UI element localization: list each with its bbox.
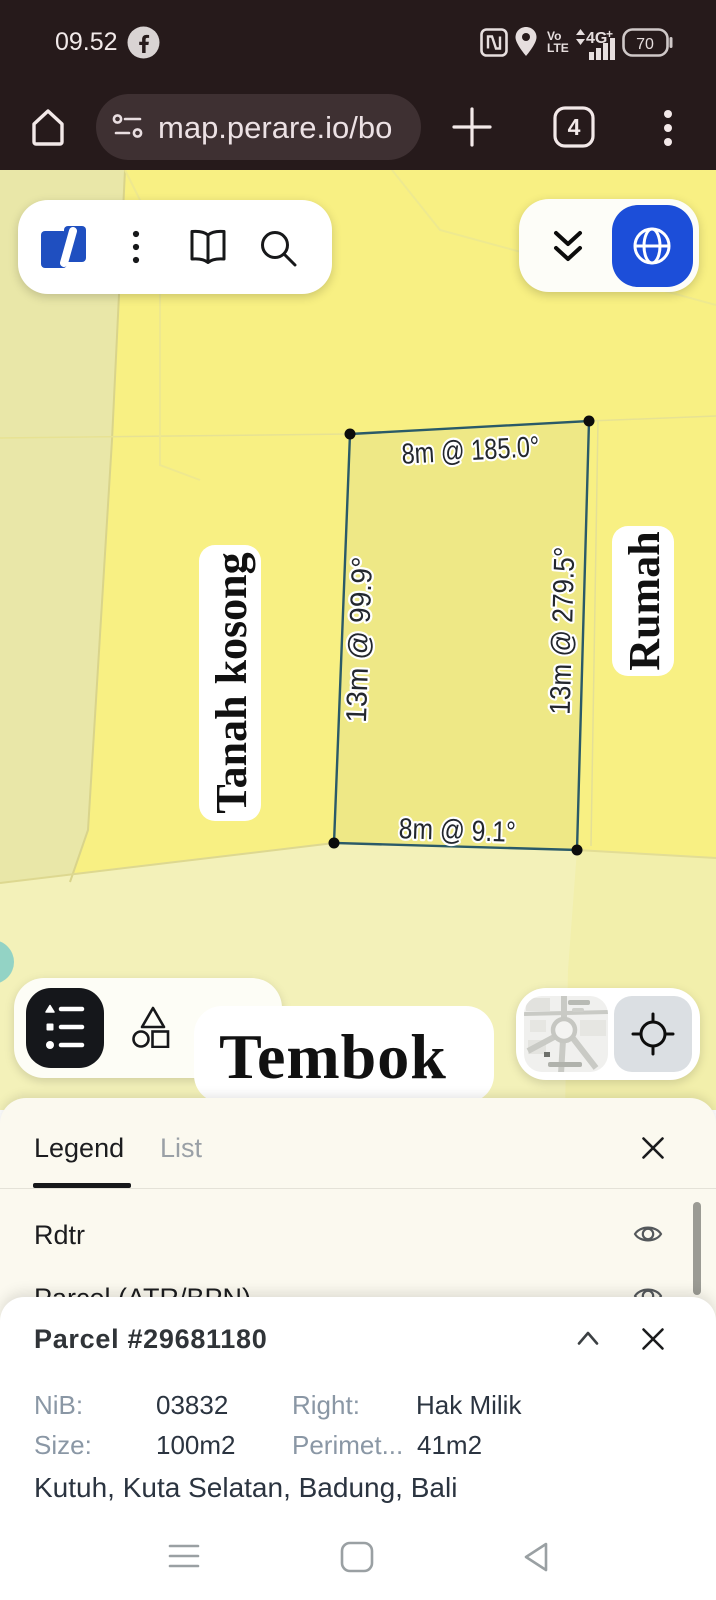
svg-text:70: 70: [636, 36, 654, 53]
svg-text:Tanah kosong: Tanah kosong: [207, 552, 256, 813]
svg-text:13m @ 279.5°: 13m @ 279.5°: [545, 546, 582, 715]
svg-text:8m @ 9.1°: 8m @ 9.1°: [398, 813, 516, 849]
svg-text:4: 4: [568, 114, 581, 140]
svg-text:Rumah: Rumah: [620, 531, 669, 670]
svg-text:13m @ 99.9°: 13m @ 99.9°: [341, 556, 379, 723]
